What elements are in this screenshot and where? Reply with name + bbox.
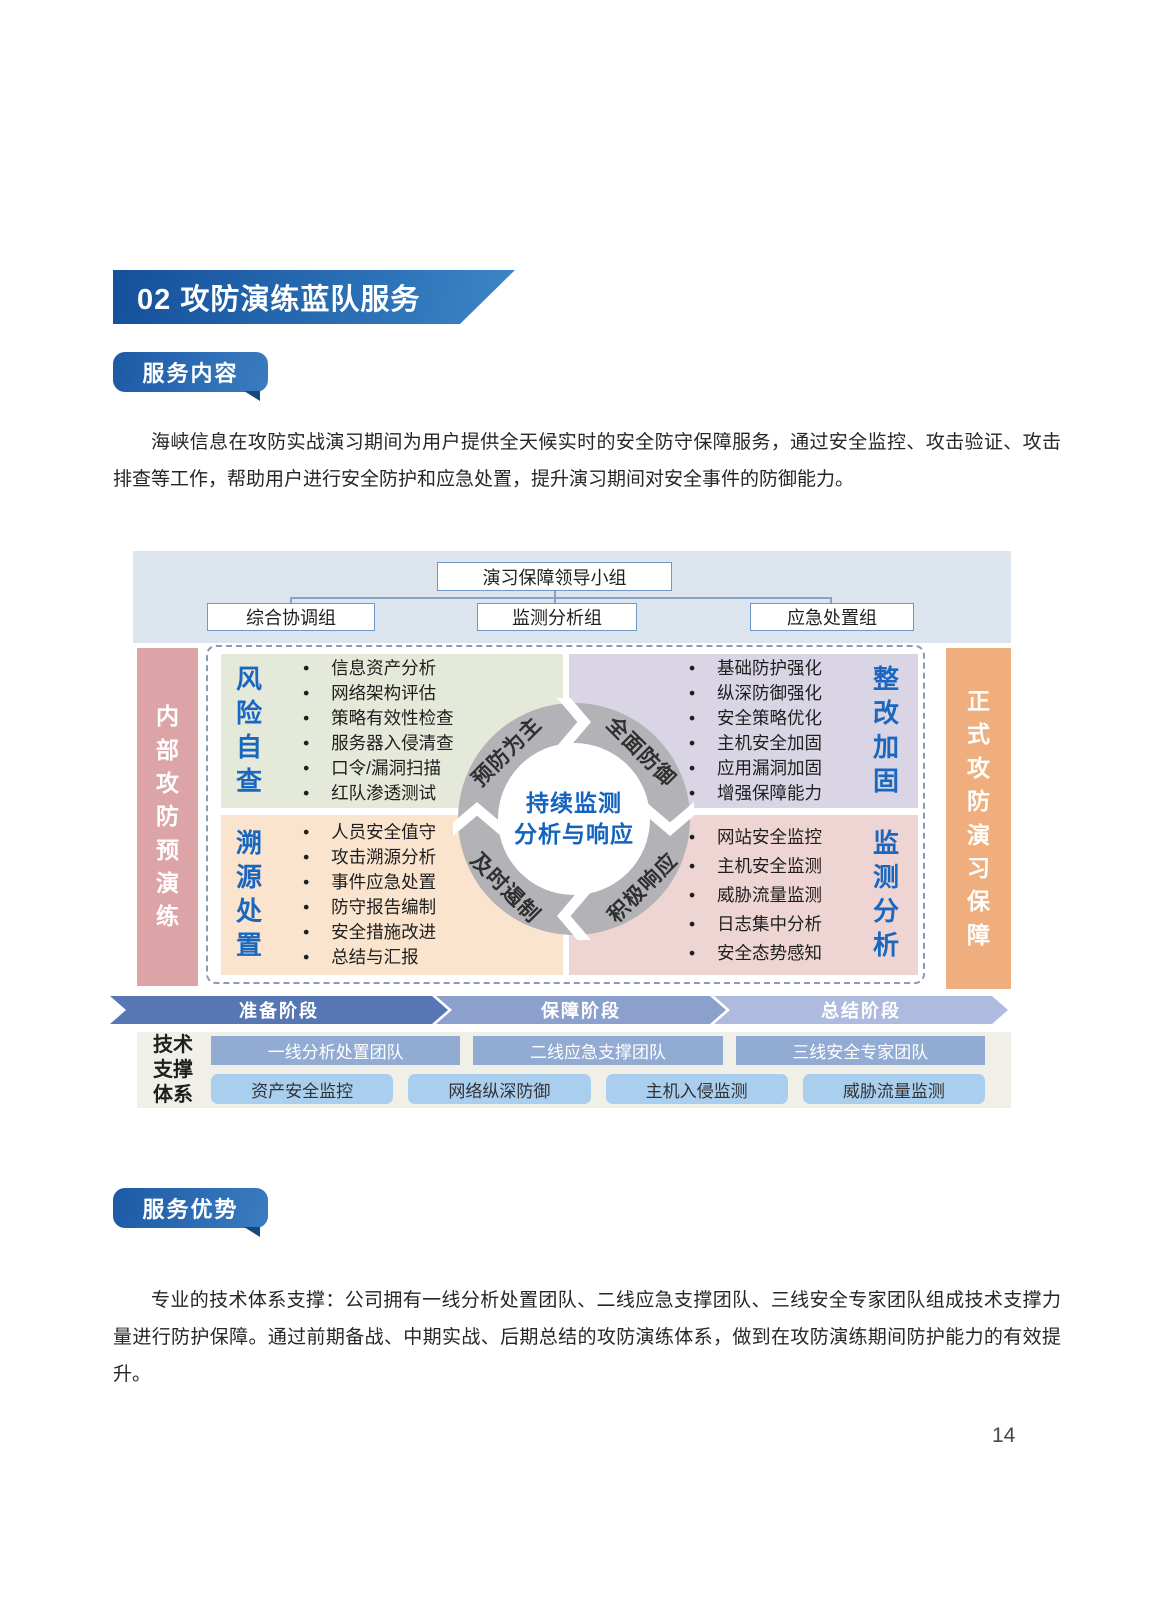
service-advantage-ribbon: 服务优势 <box>113 1188 268 1228</box>
service-diagram: 演习保障领导小组 综合协调组 监测分析组 应急处置组 内部攻防预演练 正式攻防演… <box>133 551 1011 1111</box>
capability-box: 资产安全监控 <box>211 1074 393 1104</box>
intro-paragraph: 海峡信息在攻防实战演习期间为用户提供全天候实时的安全防守保障服务，通过安全监控、… <box>113 424 1061 498</box>
page-number: 14 <box>992 1424 1015 1448</box>
phase-arrow-support: 保障阶段 <box>436 996 726 1024</box>
tech-support-rows: 一线分析处置团队 二线应急支撑团队 三线安全专家团队 资产安全监控 网络纵深防御… <box>211 1036 985 1104</box>
phase-label: 准备阶段 <box>239 997 319 1023</box>
quadrant-title: 监测分析 <box>872 827 900 962</box>
document-page: 02 攻防演练蓝队服务 服务内容 海峡信息在攻防实战演习期间为用户提供全天候实时… <box>0 0 1172 1600</box>
org-chart-band: 演习保障领导小组 综合协调组 监测分析组 应急处置组 <box>133 551 1011 643</box>
capability-box: 网络纵深防御 <box>408 1074 590 1104</box>
org-group-label: 监测分析组 <box>512 604 602 630</box>
quadrant-item: 主机安全加固 <box>681 731 872 756</box>
connector-line <box>290 597 832 599</box>
org-group-box-coordination: 综合协调组 <box>207 603 375 631</box>
phase-label: 总结阶段 <box>821 997 901 1023</box>
cycle-center-line2: 分析与响应 <box>514 819 634 850</box>
team-box: 一线分析处置团队 <box>211 1036 460 1065</box>
quadrant-item: 安全策略优化 <box>681 706 872 731</box>
service-content-ribbon-label: 服务内容 <box>142 356 238 388</box>
quadrant-title: 风险自查 <box>235 663 263 798</box>
left-phase-bar: 内部攻防预演练 <box>137 648 198 986</box>
quadrant-item: 基础防护强化 <box>681 656 872 681</box>
quadrant-item: 增强保障能力 <box>681 781 872 806</box>
phase-arrow-preparation: 准备阶段 <box>110 996 448 1024</box>
tech-support-label: 技术支撑体系 <box>153 1033 197 1108</box>
quadrant-title: 整改加固 <box>872 663 900 798</box>
capability-box: 主机入侵监测 <box>606 1074 788 1104</box>
quadrant-item: 威胁流量监测 <box>681 881 872 910</box>
quadrant-item: 总结与汇报 <box>295 945 436 970</box>
org-group-label: 综合协调组 <box>246 604 336 630</box>
quadrant-item: 事件应急处置 <box>295 870 436 895</box>
org-group-box-response: 应急处置组 <box>750 603 914 631</box>
quadrant-item: 防守报告编制 <box>295 895 436 920</box>
right-phase-bar: 正式攻防演习保障 <box>946 648 1011 989</box>
team-box: 二线应急支撑团队 <box>473 1036 722 1065</box>
phase-arrow-summary: 总结阶段 <box>714 996 1008 1024</box>
quadrant-item-list: 人员安全值守 攻击溯源分析 事件应急处置 防守报告编制 安全措施改进 总结与汇报 <box>295 820 436 970</box>
quadrant-item-list: 信息资产分析 网络架构评估 策略有效性检查 服务器入侵清查 口令/漏洞扫描 红队… <box>295 656 454 806</box>
cycle-center-line1: 持续监测 <box>526 788 622 819</box>
quadrant-item: 安全措施改进 <box>295 920 436 945</box>
quadrant-item: 安全态势感知 <box>681 939 872 968</box>
quadrant-item: 红队渗透测试 <box>295 781 454 806</box>
org-group-label: 应急处置组 <box>787 604 877 630</box>
capability-box: 威胁流量监测 <box>803 1074 985 1104</box>
section-heading-text: 02 攻防演练蓝队服务 <box>137 276 420 318</box>
quadrant-item: 服务器入侵清查 <box>295 731 454 756</box>
quadrant-item: 人员安全值守 <box>295 820 436 845</box>
org-root-box: 演习保障领导小组 <box>437 562 672 591</box>
quadrant-item: 策略有效性检查 <box>295 706 454 731</box>
quadrant-item: 口令/漏洞扫描 <box>295 756 454 781</box>
tech-capability-row: 资产安全监控 网络纵深防御 主机入侵监测 威胁流量监测 <box>211 1074 985 1104</box>
advantage-paragraph: 专业的技术体系支撑：公司拥有一线分析处置团队、二线应急支撑团队、三线安全专家团队… <box>113 1282 1061 1393</box>
quadrant-item: 信息资产分析 <box>295 656 454 681</box>
service-content-ribbon: 服务内容 <box>113 352 268 392</box>
quadrant-item: 纵深防御强化 <box>681 681 872 706</box>
tech-team-row: 一线分析处置团队 二线应急支撑团队 三线安全专家团队 <box>211 1036 985 1065</box>
service-advantage-ribbon-label: 服务优势 <box>142 1192 238 1224</box>
org-root-label: 演习保障领导小组 <box>483 564 627 590</box>
section-heading-banner: 02 攻防演练蓝队服务 <box>113 270 515 324</box>
phase-label: 保障阶段 <box>541 997 621 1023</box>
left-phase-bar-label: 内部攻防预演练 <box>155 700 180 933</box>
quadrant-item: 攻击溯源分析 <box>295 845 436 870</box>
team-box: 三线安全专家团队 <box>736 1036 985 1065</box>
right-phase-bar-label: 正式攻防演习保障 <box>966 685 991 952</box>
cycle-center-label: 持续监测 分析与响应 <box>498 743 650 895</box>
quadrant-item: 日志集中分析 <box>681 910 872 939</box>
quadrant-item: 应用漏洞加固 <box>681 756 872 781</box>
quadrant-item: 网络架构评估 <box>295 681 454 706</box>
tech-support-section: 技术支撑体系 一线分析处置团队 二线应急支撑团队 三线安全专家团队 资产安全监控… <box>137 1032 1011 1108</box>
quadrant-item: 主机安全监测 <box>681 852 872 881</box>
quadrant-item: 网站安全监控 <box>681 823 872 852</box>
quadrant-title: 溯源处置 <box>235 827 263 962</box>
org-group-box-monitoring: 监测分析组 <box>477 603 637 631</box>
continuous-cycle-diagram: 预防为主 全面防御 及时遏制 积极响应 持续监测 分析与响应 <box>458 703 690 935</box>
